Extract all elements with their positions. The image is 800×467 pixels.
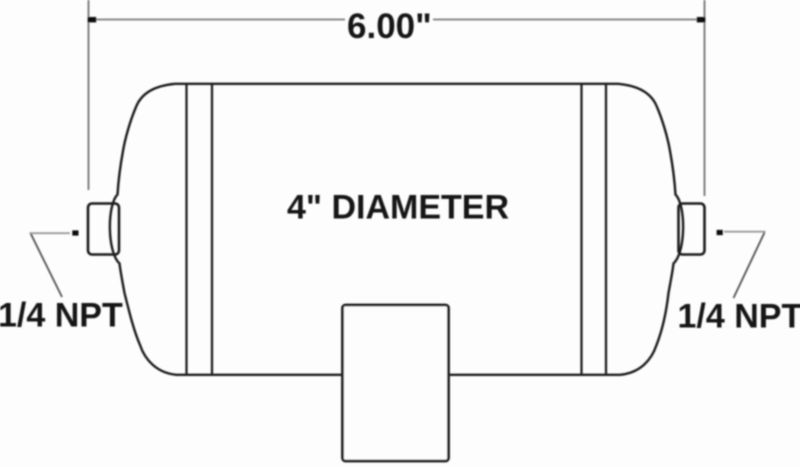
svg-text:4" DIAMETER: 4" DIAMETER <box>287 189 509 227</box>
svg-text:6.00": 6.00" <box>347 7 432 46</box>
svg-text:1/4 NPT: 1/4 NPT <box>678 298 800 336</box>
svg-text:1/4 NPT: 1/4 NPT <box>0 297 123 335</box>
